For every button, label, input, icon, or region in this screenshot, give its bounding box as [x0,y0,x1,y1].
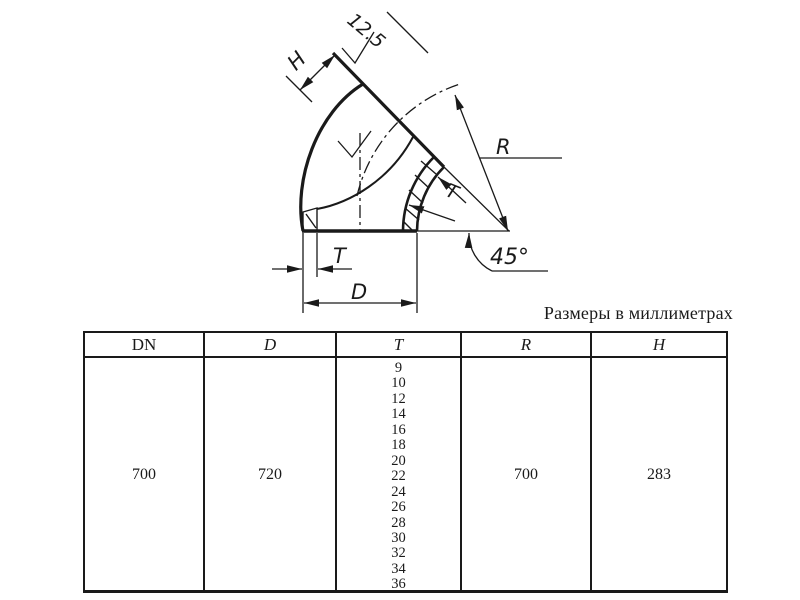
upper-face-line [333,53,444,167]
h-extension-line [286,76,312,102]
t-value: 14 [391,407,406,422]
t-value: 36 [391,577,406,592]
col-header-dn: DN [85,333,205,358]
col-header-r: R [462,333,592,358]
col-header-d: D [205,333,337,358]
t-upper-arrow-2 [409,205,455,221]
page: 12.5 H R T 45° T D Размеры в миллиметрах… [0,0,800,600]
inner-check-mark [338,131,371,157]
col-header-h: H [592,333,726,358]
t-value: 22 [391,469,406,484]
t-value: 30 [391,531,406,546]
t-value: 32 [391,546,406,561]
cell-dn: 700 [85,358,205,593]
t-value: 10 [391,376,406,391]
hatch-line [306,214,316,228]
elbow-body [301,53,444,231]
cell-r: 700 [462,358,592,593]
angle-label: 45° [490,245,529,270]
d-dim-label: D [351,280,367,304]
t-value: 12 [391,392,406,407]
angle-arc [469,233,492,271]
roughness-leader-line [387,12,428,53]
t-value: 26 [391,500,406,515]
t-value: 20 [391,454,406,469]
t-value: 34 [391,562,406,577]
section-hatching [303,152,441,231]
elbow-drawing: 12.5 H R T 45° T D [0,0,800,330]
centerlines [357,84,460,231]
t-value: 18 [391,438,406,453]
inner-wall-inner-edge [417,167,444,231]
dimensions-table: DN D T R H 700 720 9 10 12 14 16 18 20 2… [83,331,728,593]
units-caption: Размеры в миллиметрах [544,303,733,324]
bend-centerline-arc [357,84,460,196]
hatch-line [405,208,419,220]
t-value: 16 [391,423,406,438]
t-value: 24 [391,485,406,500]
r-dimension-line [455,95,508,231]
cell-h: 283 [592,358,726,593]
roughness-value-label: 12.5 [343,9,390,53]
r-dim-label: R [496,135,511,159]
t-lower-dim-label: T [333,244,348,268]
t-value: 9 [395,361,402,376]
col-header-t: T [337,333,462,358]
h-dim-label: H [283,47,311,75]
t-value: 28 [391,516,406,531]
cell-d: 720 [205,358,337,593]
cell-t-list: 9 10 12 14 16 18 20 22 24 26 28 30 32 34… [337,358,462,593]
outer-bend-arc [301,84,363,231]
hatch-line [409,190,423,203]
